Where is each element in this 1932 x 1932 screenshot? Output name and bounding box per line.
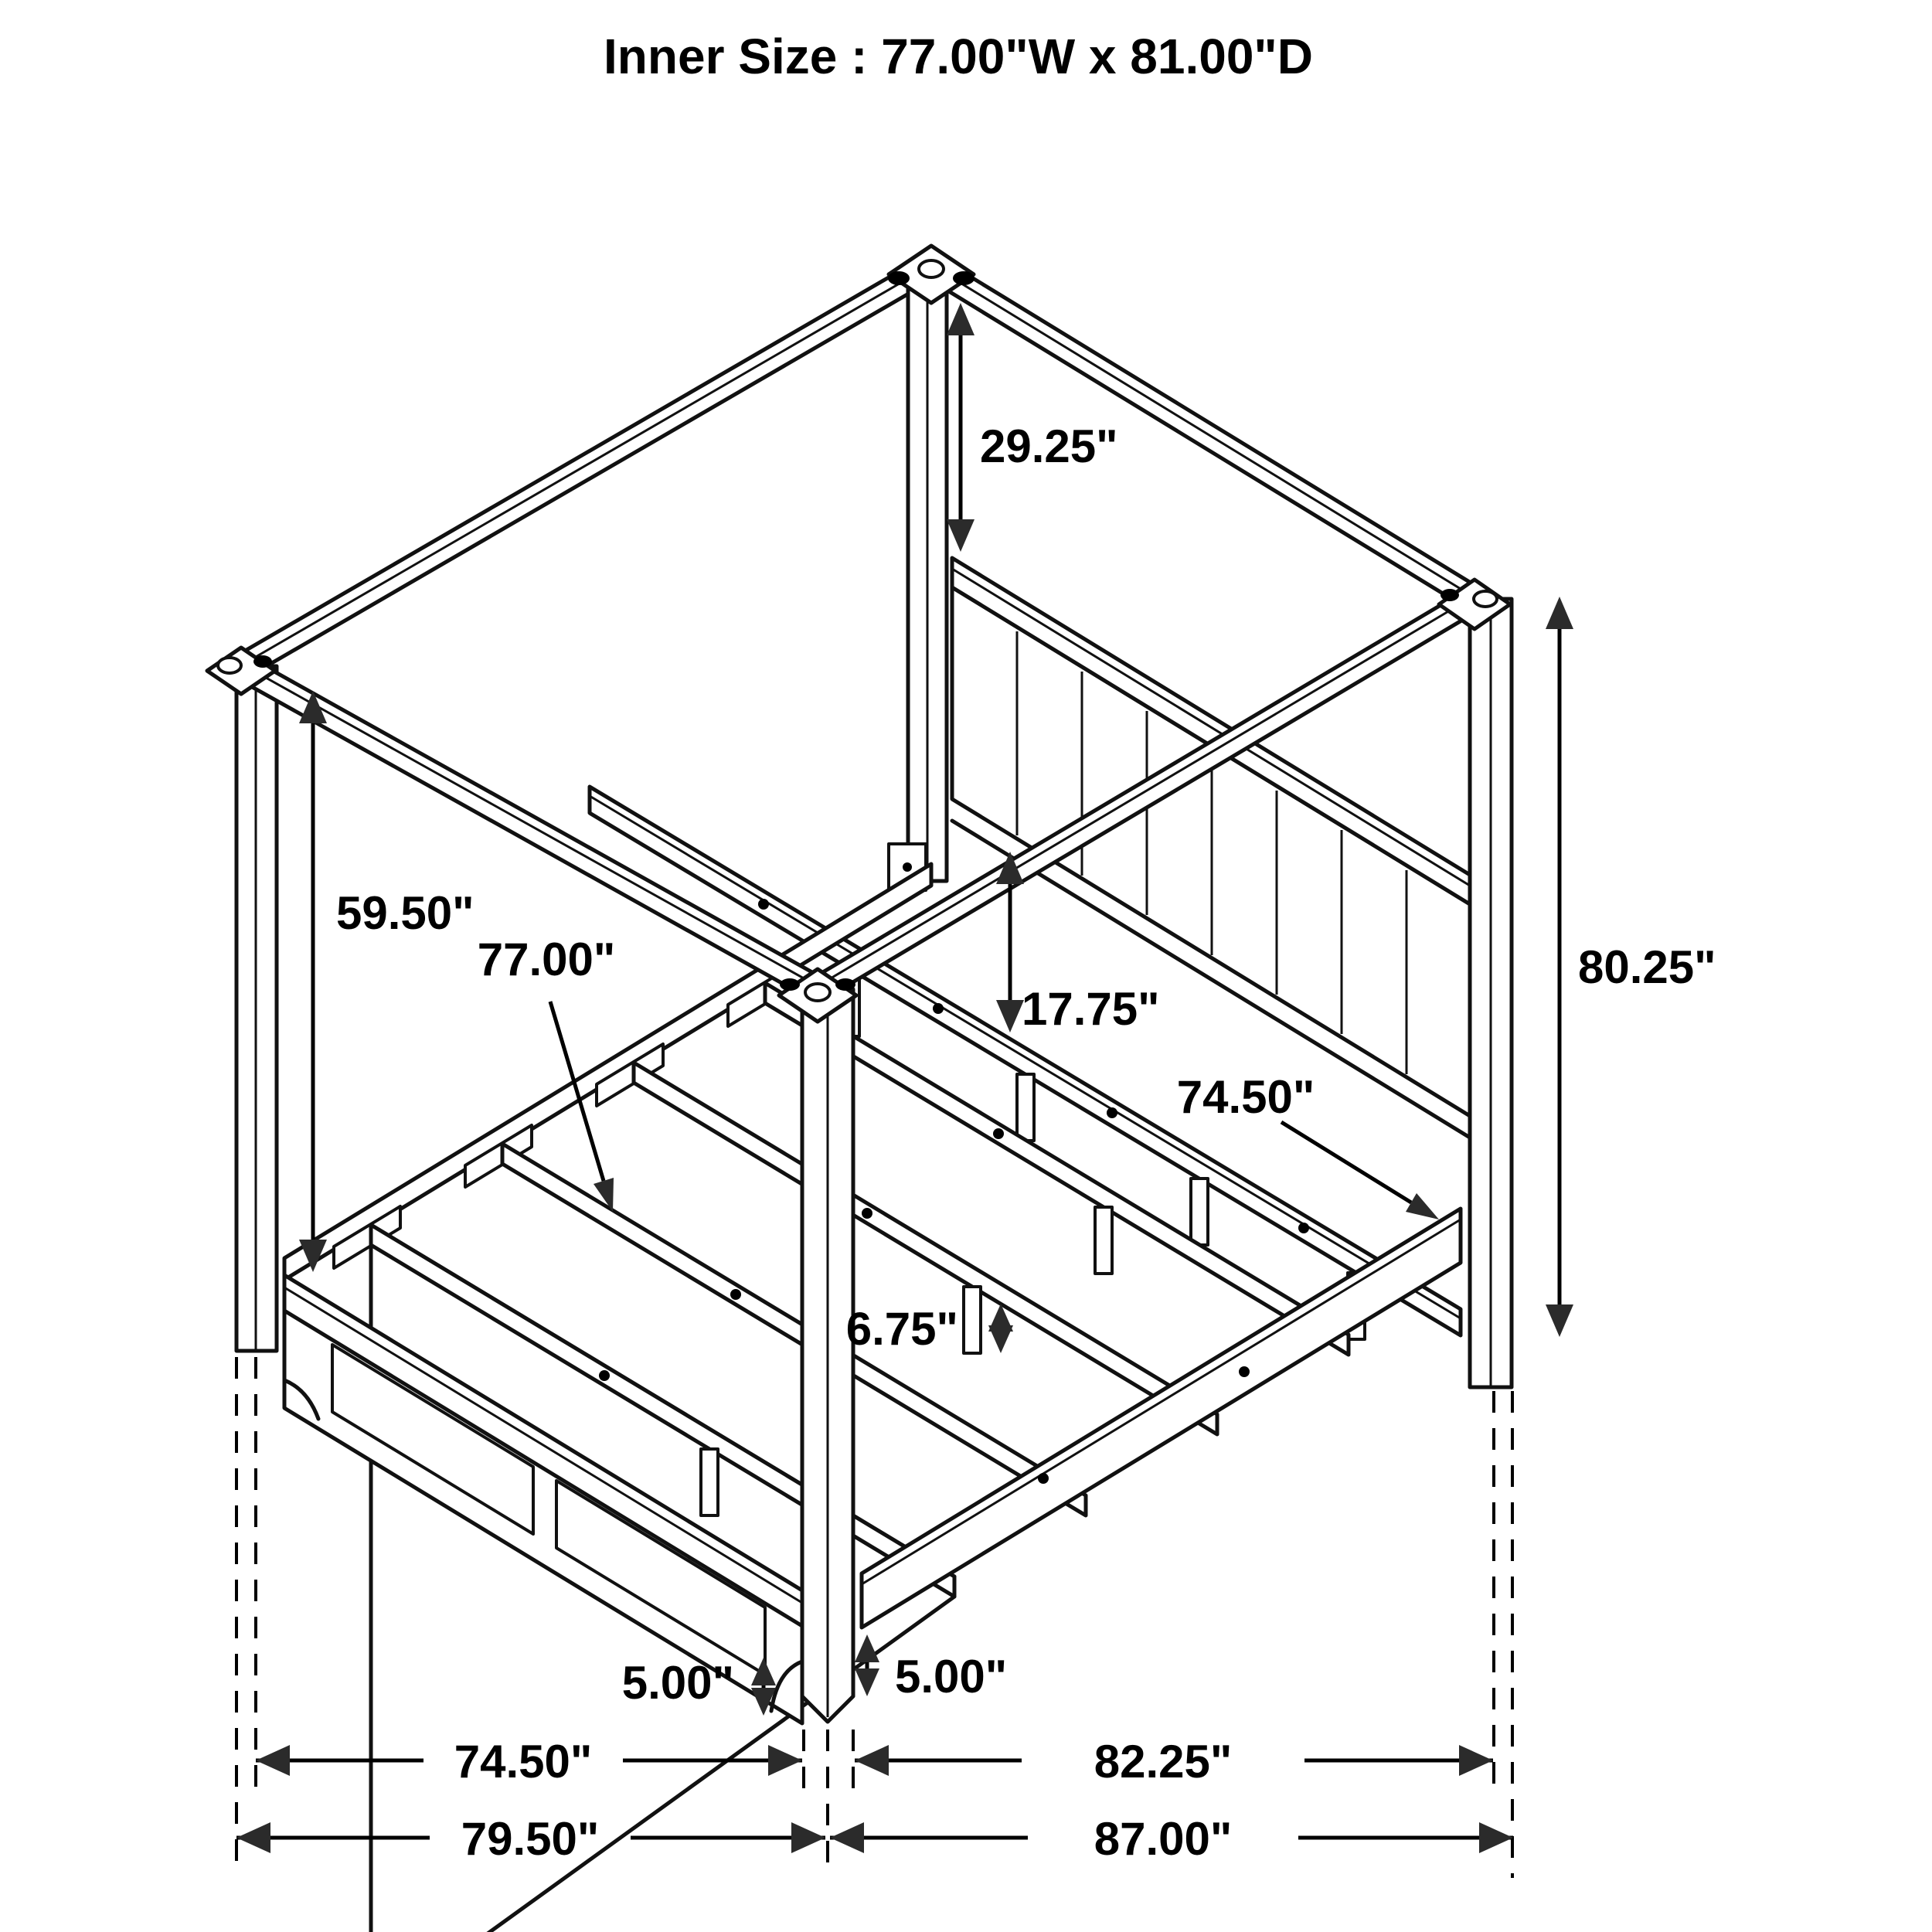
slat-leg [1191, 1179, 1208, 1245]
slat [597, 1044, 1217, 1434]
dim-label: 59.50" [336, 887, 474, 939]
dim-overall-width: 79.50" [236, 1813, 825, 1865]
dim-label: 5.00" [895, 1651, 1007, 1702]
dim-label: 74.50" [454, 1736, 593, 1787]
slat-leg [1017, 1074, 1034, 1141]
right-post [1470, 599, 1512, 1387]
dim-inner-depth-bottom: 82.25" [855, 1736, 1493, 1787]
dim-label: 74.50" [1177, 1071, 1315, 1123]
bed-line-drawing: 29.25" 59.50" 80.25" 17.75" 6.75" 5.00" [0, 0, 1932, 1932]
dim-label: 82.25" [1094, 1736, 1233, 1787]
dim-label: 6.75" [846, 1303, 958, 1355]
dim-overall-height: 80.25" [1546, 597, 1716, 1337]
dim-overall-depth: 87.00" [830, 1813, 1513, 1865]
dim-label: 80.25" [1578, 941, 1716, 993]
canopy-back-rails [241, 253, 1475, 681]
back-post [908, 270, 947, 881]
dim-label: 79.50" [461, 1813, 600, 1865]
dim-slat-leg-height: 6.75" [846, 1303, 1013, 1355]
dim-label: 29.25" [980, 420, 1118, 472]
canopy-bed-dimension-diagram: 29.25" 59.50" 80.25" 17.75" 6.75" 5.00" [0, 0, 1932, 1932]
dim-label: 17.75" [1022, 983, 1160, 1035]
corner-finial [888, 246, 975, 303]
left-post [236, 666, 277, 1351]
dim-label: 87.00" [1094, 1813, 1233, 1865]
dim-label: 5.00" [622, 1657, 734, 1709]
dim-label: 77.00" [478, 934, 616, 985]
front-post [802, 989, 853, 1722]
page-title: Inner Size : 77.00"W x 81.00"D [604, 29, 1313, 84]
